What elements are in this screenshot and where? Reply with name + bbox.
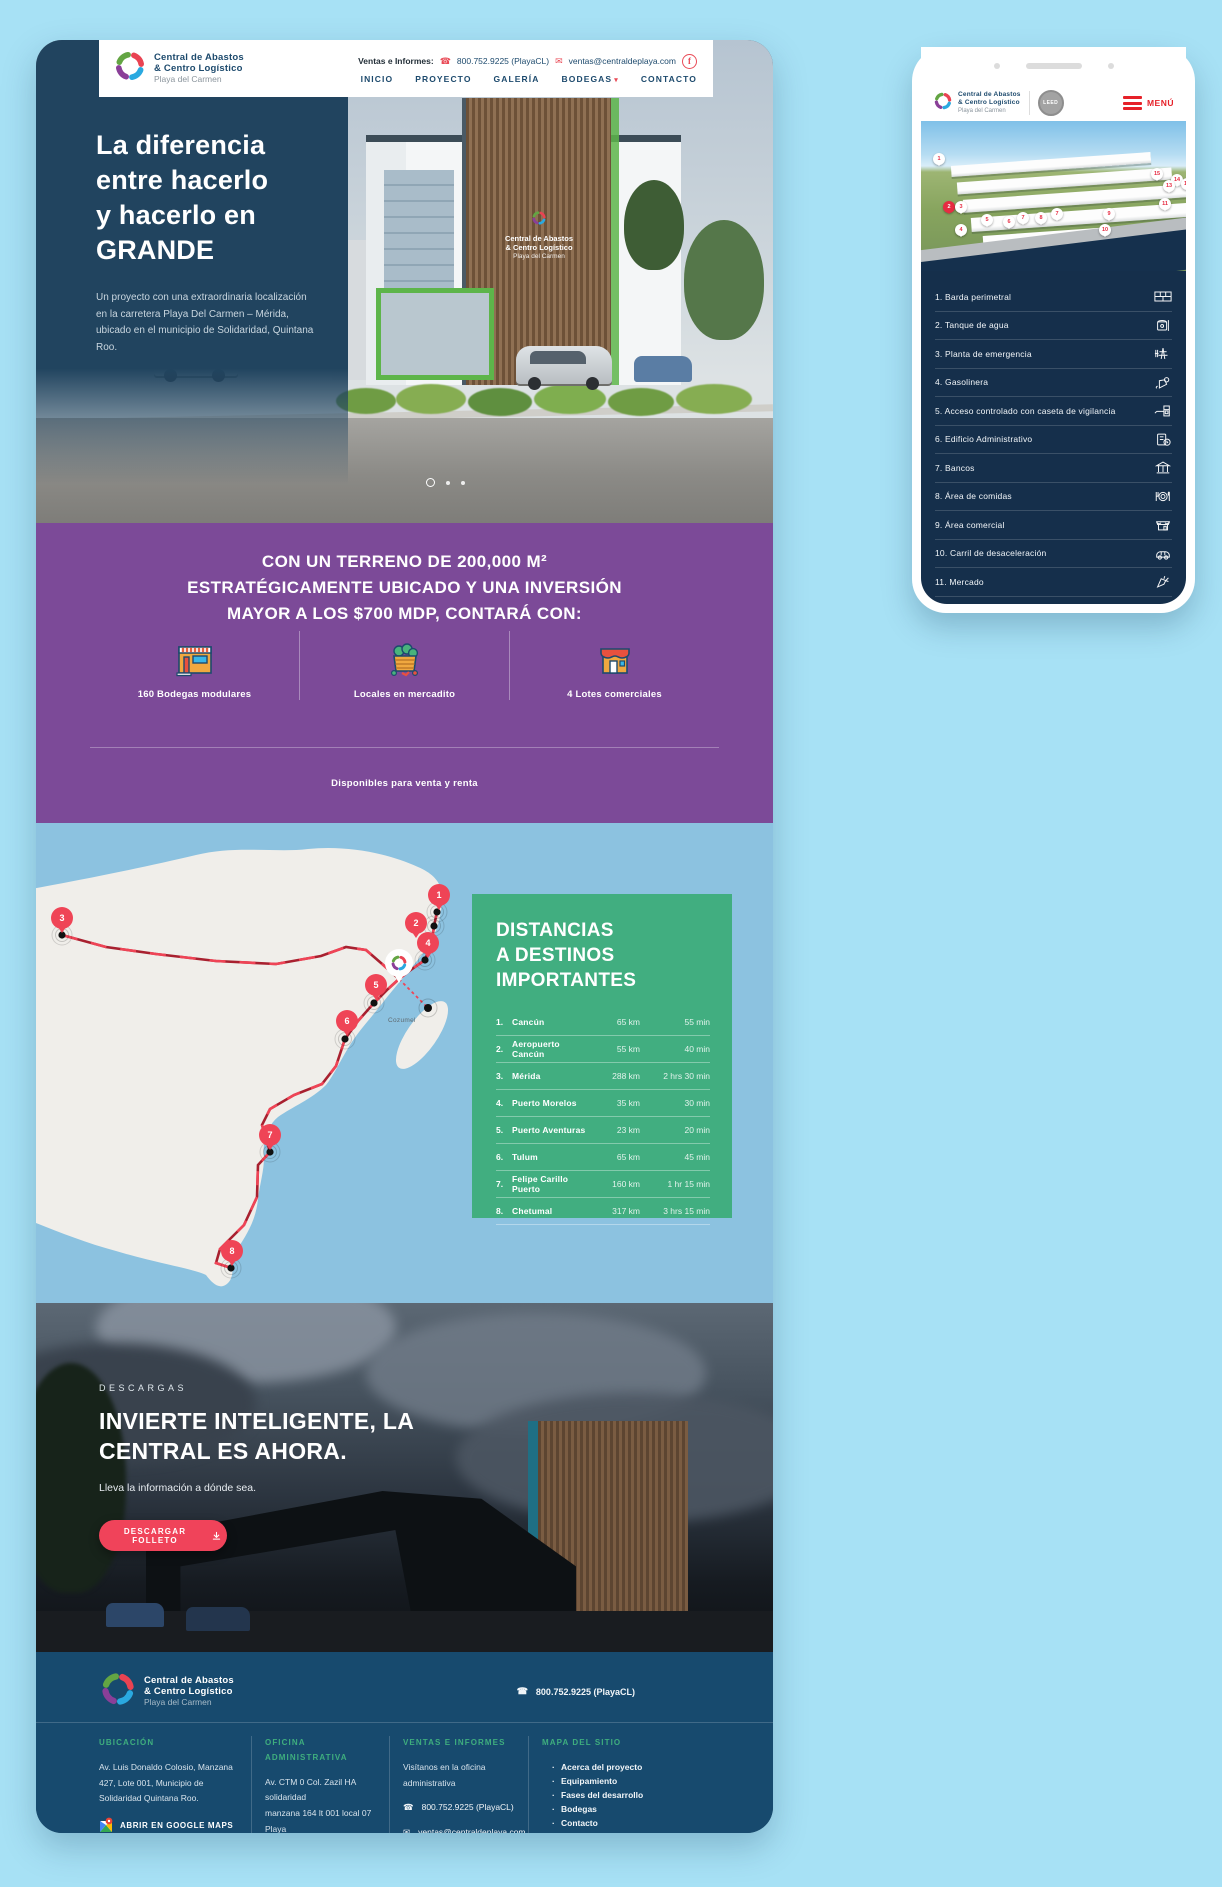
table-row: 4. Puerto Morelos 35 km 30 min: [496, 1090, 710, 1117]
sitemap-link[interactable]: Contacto: [552, 1816, 700, 1830]
aerial-pin[interactable]: 9: [1103, 208, 1115, 220]
cozumel-island: [387, 994, 457, 1077]
aerial-pin[interactable]: 4: [955, 224, 967, 236]
phone-icon: ☎: [517, 1686, 528, 1697]
carousel-dots: [426, 478, 465, 487]
logo-line: & Centro Logístico: [154, 63, 244, 74]
green-framed-storefront: [376, 288, 494, 380]
stats-section: CON UN TERRENO DE 200,000 M² ESTRATÉGICA…: [36, 523, 773, 823]
hamburger-icon: [1123, 96, 1142, 110]
list-item[interactable]: 6. Edificio Administrativo: [935, 426, 1172, 455]
footer-top: Central de Abastos & Centro Logístico Pl…: [99, 1670, 713, 1713]
stat-item: Locales en mercadito: [299, 631, 509, 700]
nav-item[interactable]: INICIO: [361, 74, 394, 84]
aerial-pin[interactable]: 1: [933, 153, 945, 165]
downloads-title: INVIERTE INTELIGENTE, LA CENTRAL ES AHOR…: [99, 1406, 414, 1466]
logo-line: Central de Abastos: [154, 52, 244, 63]
footer: Central de Abastos & Centro Logístico Pl…: [36, 1652, 773, 1833]
stat-label: 160 Bodegas modulares: [138, 689, 252, 700]
aerial-pin[interactable]: 12: [1181, 178, 1186, 190]
list-item-label: 11. Mercado: [935, 577, 1150, 587]
download-icon: [212, 1531, 221, 1541]
stat-item: 4 Lotes comerciales: [509, 631, 719, 700]
envelope-icon: ✉: [555, 56, 563, 67]
footer-heading: MAPA DEL SITIO: [542, 1736, 700, 1751]
logo-line: & Centro Logístico: [144, 1686, 234, 1697]
footer-col-ubicacion: UBICACIÓN Av. Luis Donaldo Colosio, Manz…: [99, 1736, 251, 1833]
list-item-label: 4. Gasolinera: [935, 377, 1150, 387]
building-logo: [474, 210, 604, 231]
footer-columns: UBICACIÓN Av. Luis Donaldo Colosio, Manz…: [99, 1736, 713, 1833]
address-text: Av. Luis Donaldo Colosio, Manzana 427, L…: [99, 1760, 238, 1807]
logo-ring-icon: [933, 91, 953, 116]
blue-car: [634, 356, 692, 382]
silver-suv: [516, 346, 612, 384]
table-row: 1. Cancún 65 km 55 min: [496, 1009, 710, 1036]
svg-text:3: 3: [59, 913, 64, 923]
chevron-down-icon: ▾: [614, 77, 619, 84]
food-icon: [1150, 489, 1172, 504]
footer-phone[interactable]: ☎ 800.752.9225 (PlayaCL): [517, 1686, 635, 1697]
phone-screen: Central de Abastos & Centro Logístico Pl…: [921, 47, 1186, 604]
aerial-site-photo: 1234567879101115141312: [921, 121, 1186, 271]
bush: [396, 384, 466, 414]
contact-label: Ventas e Informes:: [358, 56, 434, 66]
logo-subtitle: Playa del Carmen: [154, 74, 244, 85]
bush: [468, 388, 532, 416]
download-brochure-button[interactable]: DESCARGAR FOLLETO: [99, 1520, 227, 1551]
list-item[interactable]: 10. Carril de desaceleración: [935, 540, 1172, 569]
visit-text: Visítanos en la oficina administrativa: [403, 1760, 515, 1791]
list-item[interactable]: 12. Área industrial: [935, 597, 1172, 605]
phone-icon: ☎: [403, 1800, 414, 1816]
sitemap-link[interactable]: Bodegas: [552, 1802, 700, 1816]
main-nav: INICIOPROYECTOGALERÍABODEGAS▾CONTACTO: [361, 74, 697, 84]
list-item[interactable]: 11. Mercado: [935, 568, 1172, 597]
equipment-list: 1. Barda perimetral2. Tanque de agua3. P…: [921, 271, 1186, 604]
list-item[interactable]: 3. Planta de emergencia: [935, 340, 1172, 369]
downloads-section: DESCARGAS INVIERTE INTELIGENTE, LA CENTR…: [36, 1303, 773, 1652]
stat-item: 160 Bodegas modulares: [90, 631, 299, 700]
footer-heading: VENTAS E INFORMES: [403, 1736, 515, 1751]
footer-col-sitemap: MAPA DEL SITIO Acerca del proyectoEquipa…: [528, 1736, 713, 1833]
hero-copy: La diferencia entre hacerlo y hacerlo en…: [96, 128, 326, 356]
guard-booth-icon: [1150, 403, 1172, 418]
list-item-label: 2. Tanque de agua: [935, 320, 1150, 330]
mobile-menu-button[interactable]: MENÚ: [1123, 96, 1174, 110]
list-item[interactable]: 5. Acceso controlado con caseta de vigil…: [935, 397, 1172, 426]
desktop-mockup: Central de Abastos & Centro Logístico Pl…: [36, 40, 773, 1833]
list-item[interactable]: 4. Gasolinera: [935, 369, 1172, 398]
camera-dot: [994, 63, 1000, 69]
site-logo[interactable]: Central de Abastos & Centro Logístico Pl…: [113, 49, 244, 88]
svg-text:7: 7: [267, 1130, 272, 1140]
speaker-bar: [1026, 63, 1082, 69]
nav-item[interactable]: BODEGAS▾: [562, 74, 619, 84]
top-header: Central de Abastos & Centro Logístico Pl…: [99, 40, 713, 97]
address-text: Av. CTM 0 Col. Zazil HA solidaridad manz…: [265, 1775, 376, 1833]
carousel-dot[interactable]: [446, 481, 450, 485]
svg-text:6: 6: [344, 1016, 349, 1026]
divider: [90, 747, 719, 748]
sign-line: Playa del Carmen: [474, 252, 604, 261]
hero-title: La diferencia entre hacerlo y hacerlo en…: [96, 128, 326, 268]
stat-label: Locales en mercadito: [354, 689, 455, 700]
leed-badge: LEED: [1038, 90, 1064, 116]
list-item[interactable]: 1. Barda perimetral: [935, 283, 1172, 312]
nav-item[interactable]: PROYECTO: [415, 74, 471, 84]
list-item-label: 6. Edificio Administrativo: [935, 434, 1150, 444]
aerial-pin[interactable]: 8: [1035, 212, 1047, 224]
footer-col-oficina: OFICINA ADMINISTRATIVA Av. CTM 0 Col. Za…: [251, 1736, 389, 1833]
svg-text:8: 8: [229, 1246, 234, 1256]
page-canvas: Central de Abastos & Centro Logístico Pl…: [0, 0, 1222, 1887]
svg-text:2: 2: [413, 918, 418, 928]
water-tank-icon: [1150, 318, 1172, 333]
contact-bar: Ventas e Informes: ☎ 800.752.9225 (Playa…: [358, 54, 697, 69]
island-label: Cozumel: [388, 1017, 416, 1024]
stats-items: 160 Bodegas modulares Locales en mercadi…: [90, 631, 719, 700]
aerial-pin[interactable]: 6: [1003, 216, 1015, 228]
footer-heading: OFICINA ADMINISTRATIVA: [265, 1736, 376, 1766]
list-item[interactable]: 8. Área de comidas: [935, 483, 1172, 512]
phone-mockup: Central de Abastos & Centro Logístico Pl…: [912, 47, 1195, 613]
fuel-icon: [1150, 375, 1172, 390]
svg-text:1: 1: [436, 890, 441, 900]
table-row: 6. Tulum 65 km 45 min: [496, 1144, 710, 1171]
svg-text:4: 4: [425, 938, 430, 948]
mobile-header: Central de Abastos & Centro Logístico Pl…: [921, 85, 1186, 121]
aerial-pin[interactable]: 15: [1151, 168, 1163, 180]
building-sign: Central de Abastos & Centro Logístico Pl…: [474, 210, 604, 261]
mobile-logo[interactable]: Central de Abastos & Centro Logístico Pl…: [933, 91, 1021, 116]
nav-item[interactable]: GALERÍA: [494, 74, 540, 84]
list-item-label: 8. Área de comidas: [935, 491, 1150, 501]
list-item[interactable]: 7. Bancos: [935, 454, 1172, 483]
phone-icon: ☎: [440, 56, 451, 67]
logo-ring-icon: [99, 1670, 137, 1713]
sitemap-link[interactable]: Acerca del proyecto: [552, 1760, 700, 1774]
list-item-label: 9. Área comercial: [935, 520, 1150, 530]
power-plant-icon: [1150, 346, 1172, 361]
factory-icon: [1150, 603, 1172, 604]
stats-heading: CON UN TERRENO DE 200,000 M² ESTRATÉGICA…: [36, 549, 773, 627]
aerial-pin[interactable]: 3: [955, 201, 967, 213]
sign-line: Central de Abastos: [474, 234, 604, 243]
logo-line: Central de Abastos: [144, 1675, 234, 1686]
footer-col-ventas: VENTAS E INFORMES Visítanos en la oficin…: [389, 1736, 528, 1833]
downloads-subtitle: Lleva la información a dónde sea.: [99, 1482, 414, 1494]
aerial-pin[interactable]: 7: [1051, 208, 1063, 220]
bush: [676, 384, 752, 414]
divider: [36, 1722, 773, 1723]
list-item-label: 10. Carril de desaceleración: [935, 548, 1150, 558]
distances-table: 1. Cancún 65 km 55 min 2. Aeropuerto Can…: [496, 1009, 710, 1225]
open-google-maps-button[interactable]: ABRIR EN GOOGLE MAPS: [99, 1817, 233, 1833]
carrot-icon: [1150, 574, 1172, 589]
carousel-dot[interactable]: [461, 481, 465, 485]
sign-line: & Centro Logístico: [474, 243, 604, 252]
phone-speaker: [921, 47, 1186, 85]
hero-section: Central de Abastos & Centro Logístico Pl…: [36, 40, 773, 523]
carousel-dot-active[interactable]: [426, 478, 435, 487]
list-item-label: 5. Acceso controlado con caseta de vigil…: [935, 406, 1150, 416]
list-item[interactable]: 2. Tanque de agua: [935, 312, 1172, 341]
table-row: 5. Puerto Aventuras 23 km 20 min: [496, 1117, 710, 1144]
table-row: 2. Aeropuerto Cancún 55 km 40 min: [496, 1036, 710, 1063]
google-maps-icon: [99, 1817, 113, 1833]
car-silhouette: [106, 1603, 164, 1627]
aerial-pin[interactable]: 10: [1099, 224, 1111, 236]
divider: [1029, 91, 1030, 115]
footer-logo: Central de Abastos & Centro Logístico Pl…: [99, 1670, 234, 1713]
list-item[interactable]: 9. Área comercial: [935, 511, 1172, 540]
aerial-pin[interactable]: 2: [943, 201, 955, 213]
stats-footnote: Disponibles para venta y renta: [36, 778, 773, 789]
aerial-pin[interactable]: 5: [981, 214, 993, 226]
footer-heading: UBICACIÓN: [99, 1736, 238, 1751]
tree: [624, 180, 684, 270]
sitemap-link[interactable]: Equipamiento: [552, 1774, 700, 1788]
table-row: 7. Felipe Carillo Puerto 160 km 1 hr 15 …: [496, 1171, 710, 1198]
table-row: 3. Mérida 288 km 2 hrs 30 min: [496, 1063, 710, 1090]
sitemap-links: Acerca del proyectoEquipamientoFases del…: [542, 1760, 700, 1830]
aerial-pin[interactable]: 11: [1159, 198, 1171, 210]
logo-ring-icon: [113, 49, 147, 88]
downloads-copy: DESCARGAS INVIERTE INTELIGENTE, LA CENTR…: [99, 1383, 414, 1551]
car-icon: [1150, 546, 1172, 561]
car-silhouette: [186, 1607, 250, 1631]
store-front-icon: [1150, 517, 1172, 532]
table-row: 8. Chetumal 317 km 3 hrs 15 min: [496, 1198, 710, 1225]
list-item-label: 7. Bancos: [935, 463, 1150, 473]
admin-building-icon: [1150, 432, 1172, 447]
downloads-eyebrow: DESCARGAS: [99, 1383, 414, 1393]
envelope-icon: ✉: [403, 1825, 410, 1833]
sitemap-link[interactable]: Fases del desarrollo: [552, 1788, 700, 1802]
stat-label: 4 Lotes comerciales: [567, 689, 662, 700]
distances-panel: DISTANCIAS A DESTINOS IMPORTANTES 1. Can…: [472, 894, 732, 1218]
yucatan-landmass: [36, 848, 442, 1286]
aerial-pin[interactable]: 7: [1017, 212, 1029, 224]
footer-email-row[interactable]: ✉ ventas@centraldeplaya.com: [403, 1825, 515, 1833]
bush: [608, 388, 674, 416]
distances-map-section: 1 2 3 4 5: [36, 823, 773, 1303]
tree: [684, 220, 764, 340]
brick-wall-icon: [1150, 289, 1172, 304]
header-email-link[interactable]: ventas@centraldeplaya.com: [569, 56, 676, 66]
green-accent-post: [611, 98, 619, 385]
hero-description: Un proyecto con una extraordinaria local…: [96, 290, 314, 356]
list-item-label: 3. Planta de emergencia: [935, 349, 1150, 359]
nav-item[interactable]: CONTACTO: [641, 74, 697, 84]
header-phone-link[interactable]: 800.752.9225 (PlayaCL): [457, 56, 549, 66]
logo-subtitle: Playa del Carmen: [144, 1697, 234, 1708]
list-item-label: 1. Barda perimetral: [935, 292, 1150, 302]
bank-icon: [1150, 460, 1172, 475]
svg-text:5: 5: [373, 980, 378, 990]
footer-phone-row[interactable]: ☎ 800.752.9225 (PlayaCL): [403, 1800, 515, 1816]
facebook-icon[interactable]: f: [682, 54, 697, 69]
aerial-pin[interactable]: 13: [1163, 180, 1175, 192]
distances-title: DISTANCIAS A DESTINOS IMPORTANTES: [496, 918, 710, 993]
camera-dot: [1108, 63, 1114, 69]
